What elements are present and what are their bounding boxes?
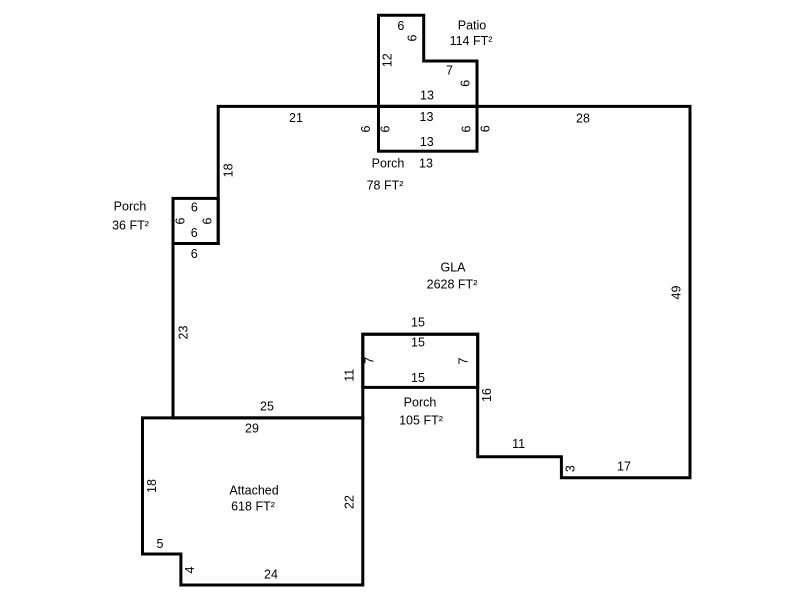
svg-text:22: 22 [342, 495, 356, 509]
svg-text:105 FT²: 105 FT² [399, 413, 443, 427]
svg-text:6: 6 [459, 125, 473, 132]
svg-text:15: 15 [411, 315, 425, 329]
svg-text:3: 3 [563, 465, 577, 472]
svg-text:5: 5 [157, 537, 164, 551]
svg-text:12: 12 [380, 53, 394, 67]
svg-text:618 FT²: 618 FT² [231, 500, 275, 514]
svg-text:18: 18 [221, 163, 235, 177]
svg-text:6: 6 [191, 226, 198, 240]
svg-text:25: 25 [260, 399, 274, 413]
svg-text:7: 7 [363, 357, 377, 364]
svg-text:Porch: Porch [372, 156, 405, 170]
svg-text:114 FT²: 114 FT² [450, 34, 493, 48]
svg-text:7: 7 [457, 357, 471, 364]
svg-text:6: 6 [378, 125, 392, 132]
svg-text:6: 6 [405, 34, 419, 41]
svg-text:17: 17 [617, 460, 631, 474]
svg-text:Patio: Patio [458, 18, 487, 32]
svg-text:23: 23 [176, 326, 190, 340]
svg-text:13: 13 [419, 156, 433, 170]
svg-text:GLA: GLA [440, 261, 466, 275]
svg-text:15: 15 [411, 336, 425, 350]
svg-text:6: 6 [191, 200, 198, 214]
svg-text:Attached: Attached [229, 483, 278, 497]
svg-text:Porch: Porch [404, 395, 437, 409]
svg-text:16: 16 [480, 388, 494, 402]
svg-text:6: 6 [397, 19, 404, 33]
svg-text:29: 29 [245, 421, 259, 435]
svg-text:6: 6 [479, 125, 493, 132]
svg-text:28: 28 [576, 111, 590, 125]
svg-text:78 FT²: 78 FT² [367, 178, 404, 192]
svg-text:36 FT²: 36 FT² [112, 218, 149, 232]
svg-text:24: 24 [264, 568, 278, 582]
svg-text:Porch: Porch [114, 199, 147, 213]
svg-text:49: 49 [669, 286, 683, 300]
svg-text:11: 11 [342, 369, 356, 382]
svg-text:4: 4 [183, 566, 197, 573]
svg-text:7: 7 [446, 63, 453, 77]
svg-text:15: 15 [411, 371, 425, 385]
svg-text:6: 6 [201, 217, 215, 224]
svg-text:2628 FT²: 2628 FT² [427, 278, 478, 292]
svg-text:21: 21 [289, 111, 303, 125]
svg-text:6: 6 [173, 217, 187, 224]
svg-text:13: 13 [420, 135, 434, 149]
svg-text:11: 11 [512, 437, 525, 451]
svg-text:18: 18 [145, 479, 159, 493]
svg-text:6: 6 [459, 80, 473, 87]
svg-text:6: 6 [191, 247, 198, 261]
svg-text:13: 13 [420, 110, 434, 124]
svg-text:13: 13 [420, 88, 434, 102]
svg-text:6: 6 [359, 125, 373, 132]
